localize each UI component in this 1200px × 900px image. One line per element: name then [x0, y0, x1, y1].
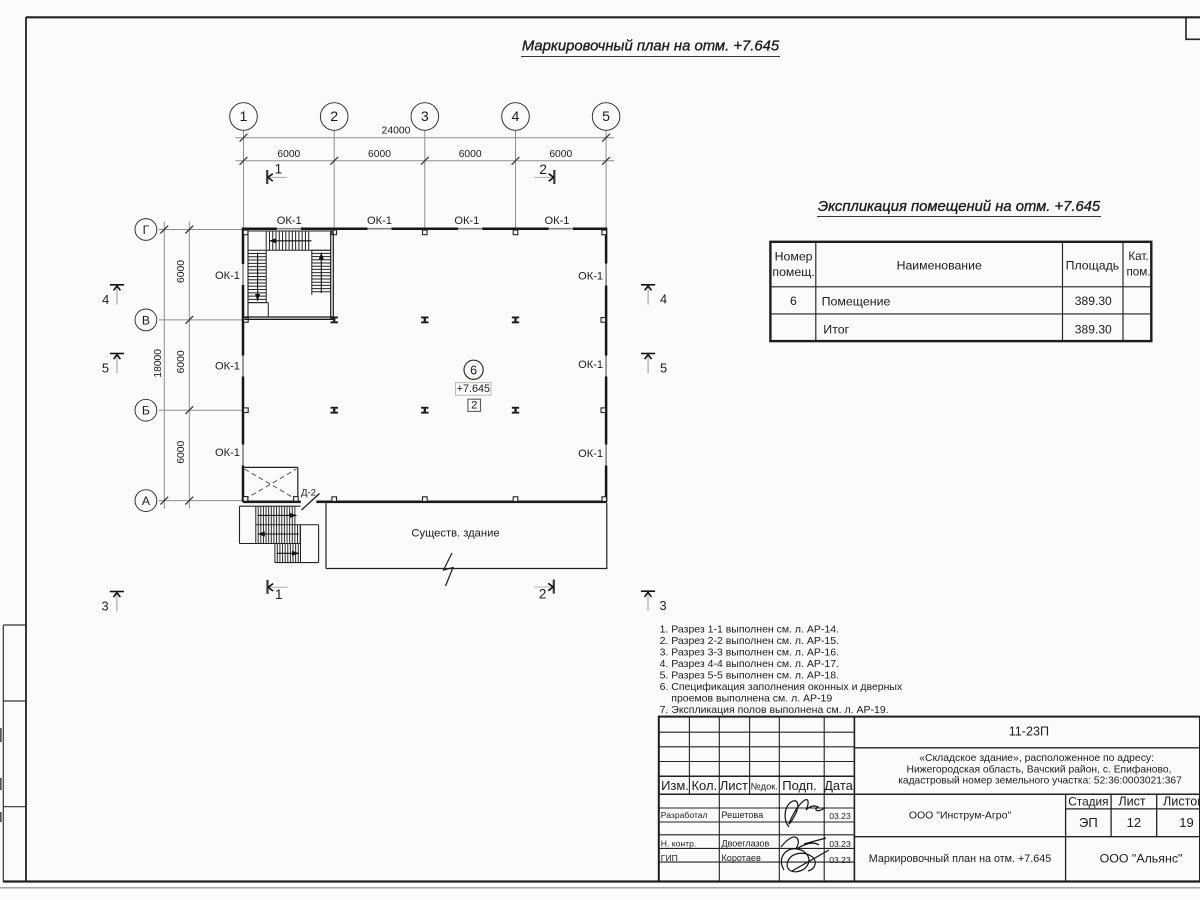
- svg-text:5. Разрез 5-5 выполнен см. л.: 5. Разрез 5-5 выполнен см. л. АР-18.: [660, 670, 839, 682]
- svg-text:Изм.: Изм.: [661, 778, 689, 793]
- svg-text:19: 19: [1179, 815, 1193, 830]
- svg-text:ОК-1: ОК-1: [367, 215, 392, 227]
- svg-text:Нижегородская область, Вачский: Нижегородская область, Вачский район, с.…: [907, 763, 1172, 775]
- svg-text:проемов выполнена см. л. АР-19: проемов выполнена см. л. АР-19: [660, 693, 833, 705]
- svg-text:6000: 6000: [459, 149, 482, 160]
- svg-text:6000: 6000: [368, 149, 391, 160]
- svg-text:Коротаев: Коротаев: [722, 853, 761, 863]
- svg-text:2: 2: [471, 400, 477, 412]
- svg-text:6: 6: [790, 294, 797, 308]
- svg-text:«Складское здание», расположен: «Складское здание», расположенное по адр…: [919, 753, 1154, 764]
- svg-text:Помещение: Помещение: [822, 295, 891, 309]
- svg-text:Кат.: Кат.: [1128, 250, 1148, 263]
- svg-text:6. Спецификация заполнения око: 6. Спецификация заполнения оконных и две…: [660, 681, 903, 693]
- svg-text:3: 3: [659, 598, 666, 613]
- svg-text:1: 1: [240, 109, 248, 125]
- svg-text:Подп.: Подп.: [782, 778, 817, 793]
- svg-text:03.23: 03.23: [829, 811, 851, 821]
- svg-text:1: 1: [275, 587, 283, 602]
- svg-text:Решетова: Решетова: [722, 810, 765, 820]
- svg-text:6000: 6000: [549, 149, 572, 160]
- svg-text:ОК-1: ОК-1: [578, 359, 603, 371]
- svg-text:1: 1: [275, 162, 283, 177]
- svg-text:389.30: 389.30: [1075, 323, 1112, 337]
- svg-text:Лист: Лист: [1118, 795, 1146, 809]
- svg-text:Листов: Листов: [1163, 795, 1200, 809]
- svg-text:2: 2: [539, 586, 547, 601]
- svg-text:4. Разрез 4-4 выполнен см. л.: 4. Разрез 4-4 выполнен см. л. АР-17.: [660, 658, 839, 670]
- svg-text:6000: 6000: [176, 440, 187, 463]
- svg-text:Наименование: Наименование: [897, 259, 982, 273]
- svg-text:Существ. здание: Существ. здание: [411, 528, 499, 540]
- svg-text:Площадь: Площадь: [1066, 259, 1120, 273]
- svg-text:18000: 18000: [153, 349, 164, 378]
- svg-text:ООО "Инструм-Агро": ООО "Инструм-Агро": [909, 809, 1012, 821]
- svg-text:389.30: 389.30: [1075, 294, 1112, 308]
- svg-text:3: 3: [101, 598, 108, 613]
- svg-text:5: 5: [660, 360, 667, 375]
- svg-text:Г: Г: [143, 223, 150, 237]
- svg-text:6000: 6000: [277, 149, 300, 160]
- svg-text:1. Разрез 1-1 выполнен см. л.: 1. Разрез 1-1 выполнен см. л. АР-14.: [660, 624, 839, 636]
- svg-text:В: В: [142, 313, 150, 327]
- svg-text:Дата: Дата: [824, 778, 854, 793]
- svg-text:2: 2: [330, 109, 338, 125]
- svg-text:4: 4: [512, 109, 520, 125]
- svg-text:Итог: Итог: [823, 323, 849, 337]
- svg-text:Д-2: Д-2: [301, 487, 316, 498]
- svg-text:Двоеглазов: Двоеглазов: [722, 838, 770, 848]
- svg-text:ОК-1: ОК-1: [545, 215, 570, 227]
- svg-text:12: 12: [1127, 815, 1141, 830]
- svg-text:2: 2: [539, 162, 547, 177]
- svg-text:+7.645: +7.645: [457, 383, 490, 395]
- svg-text:ОК-1: ОК-1: [215, 361, 240, 373]
- svg-text:ОК-1: ОК-1: [578, 271, 603, 283]
- svg-text:Номер: Номер: [775, 250, 813, 264]
- svg-text:3. Разрез 3-3 выполнен см. л.: 3. Разрез 3-3 выполнен см. л. АР-16.: [660, 647, 839, 659]
- svg-text:4: 4: [660, 292, 667, 307]
- svg-text:6000: 6000: [176, 260, 187, 283]
- svg-text:ОК-1: ОК-1: [277, 215, 302, 227]
- svg-text:ОК-1: ОК-1: [215, 270, 240, 282]
- svg-text:3: 3: [421, 109, 429, 125]
- svg-text:6000: 6000: [176, 350, 187, 373]
- svg-text:А: А: [142, 494, 151, 508]
- svg-text:ОК-1: ОК-1: [454, 215, 479, 227]
- svg-text:ООО "Альянс": ООО "Альянс": [1100, 851, 1183, 865]
- svg-text:Кол.: Кол.: [691, 778, 717, 793]
- svg-text:24000: 24000: [382, 126, 411, 137]
- svg-text:помещ.: помещ.: [772, 265, 814, 279]
- svg-text:5: 5: [602, 109, 610, 125]
- svg-text:кадастровый номер земельного у: кадастровый номер земельного участка: 52…: [898, 776, 1182, 787]
- svg-text:03.23: 03.23: [829, 855, 851, 865]
- svg-text:ОК-1: ОК-1: [578, 448, 603, 460]
- svg-text:пом.: пом.: [1126, 266, 1150, 279]
- svg-text:ЭП: ЭП: [1079, 815, 1098, 830]
- svg-text:Стадия: Стадия: [1068, 795, 1108, 809]
- svg-text:Б: Б: [142, 404, 150, 418]
- svg-text:ОК-1: ОК-1: [215, 447, 240, 459]
- svg-text:Разработал: Разработал: [661, 810, 708, 820]
- svg-text:4: 4: [102, 292, 109, 307]
- svg-text:6: 6: [470, 363, 477, 377]
- svg-text:5: 5: [102, 360, 109, 375]
- svg-text:03.23: 03.23: [829, 839, 851, 849]
- svg-text:11-23П: 11-23П: [1009, 725, 1049, 739]
- svg-text:7. Экспликация полов выполнена: 7. Экспликация полов выполнена см. л. АР…: [660, 704, 889, 716]
- svg-text:2. Разрез 2-2 выполнен см. л.: 2. Разрез 2-2 выполнен см. л. АР-15.: [660, 635, 839, 647]
- svg-text:Экспликация помещений на отм.: Экспликация помещений на отм. +7.645: [818, 199, 1101, 215]
- svg-text:Н. контр.: Н. контр.: [661, 839, 696, 849]
- svg-text:Маркировочный план на отм. +7.: Маркировочный план на отм. +7.645: [869, 853, 1051, 865]
- svg-text:Маркировочный план на отм. +7.: Маркировочный план на отм. +7.645: [522, 39, 780, 55]
- svg-text:Лист: Лист: [720, 778, 748, 793]
- svg-text:№док.: №док.: [751, 780, 778, 791]
- svg-text:ГИП: ГИП: [661, 853, 678, 863]
